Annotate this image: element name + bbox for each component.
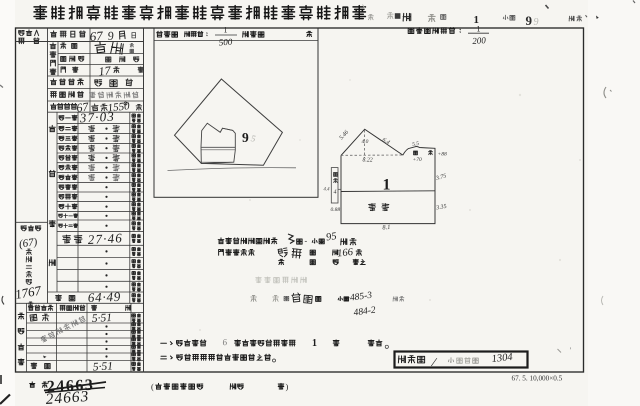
svg-text:37·03: 37·03 — [78, 109, 115, 126]
svg-text:5·51: 5·51 — [93, 360, 114, 373]
svg-text:95: 95 — [325, 231, 337, 243]
svg-text:8.1: 8.1 — [382, 224, 391, 232]
svg-text:500: 500 — [218, 37, 233, 48]
svg-text:1: 1 — [383, 177, 391, 194]
svg-text:27·46: 27·46 — [87, 230, 123, 247]
svg-text:64·49: 64·49 — [88, 289, 122, 305]
svg-text:5.5: 5.5 — [412, 141, 420, 148]
svg-text:1304: 1304 — [491, 352, 514, 365]
svg-text:0.88: 0.88 — [331, 207, 341, 213]
svg-text:67. 5. 10,000×0.5: 67. 5. 10,000×0.5 — [512, 375, 563, 383]
svg-text:1: 1 — [312, 338, 317, 349]
svg-text:+70: +70 — [413, 157, 422, 163]
svg-text:+88: +88 — [438, 152, 447, 158]
svg-text:1: 1 — [224, 26, 228, 35]
svg-text:5·51: 5·51 — [92, 312, 113, 325]
svg-text:9: 9 — [107, 29, 114, 43]
svg-text:9: 9 — [242, 130, 249, 145]
svg-text:9: 9 — [534, 17, 539, 28]
svg-text:8.22: 8.22 — [363, 158, 373, 164]
svg-text:): ) — [286, 382, 289, 392]
svg-text:166: 166 — [337, 247, 355, 260]
svg-text:67: 67 — [89, 28, 104, 44]
svg-text:4: 4 — [334, 189, 337, 196]
svg-text:24663: 24663 — [45, 388, 90, 406]
svg-text:9: 9 — [526, 13, 533, 28]
svg-text:4.4: 4.4 — [324, 188, 331, 193]
svg-text:4.0: 4.0 — [362, 138, 369, 145]
svg-text:1: 1 — [477, 25, 481, 34]
svg-text:200: 200 — [472, 35, 487, 46]
svg-text:-: - — [305, 237, 308, 246]
svg-text:': ' — [569, 346, 571, 355]
svg-text:(: ( — [151, 382, 154, 392]
